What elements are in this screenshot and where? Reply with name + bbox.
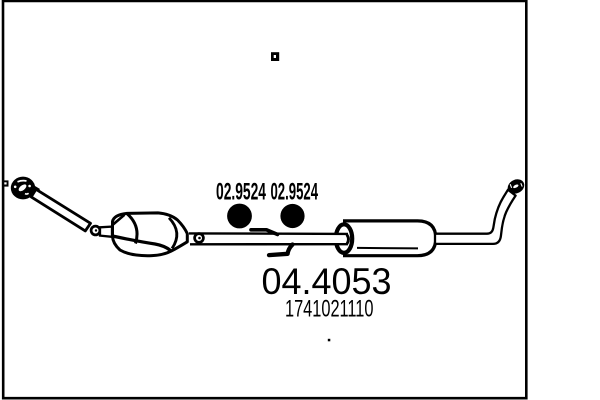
svg-text:02.9524: 02.9524: [216, 179, 266, 206]
svg-text:1741021110: 1741021110: [285, 295, 374, 322]
svg-text:02.9524: 02.9524: [271, 179, 319, 206]
